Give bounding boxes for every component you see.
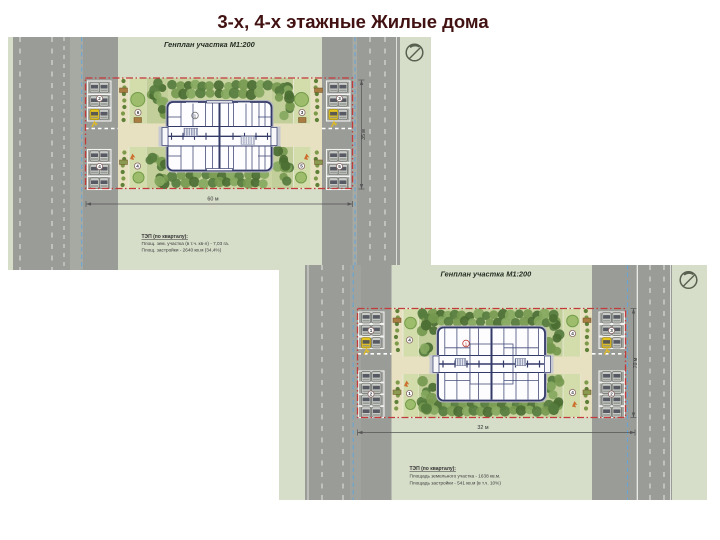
svg-text:32 м: 32 м (477, 425, 488, 431)
svg-text:Площадь застройки - 541 кв.м (: Площадь застройки - 541 кв.м (в т.ч. 10%… (410, 480, 502, 486)
svg-text:35 м: 35 м (361, 129, 367, 140)
svg-text:3: 3 (338, 96, 341, 101)
svg-text:1: 1 (194, 113, 197, 119)
svg-text:4: 4 (408, 338, 411, 343)
svg-text:4: 4 (571, 390, 574, 395)
svg-text:1: 1 (465, 341, 468, 347)
svg-text:5: 5 (300, 164, 303, 169)
svg-text:60 м: 60 м (207, 197, 218, 203)
svg-text:Генплан участка М1:200: Генплан участка М1:200 (164, 40, 256, 49)
svg-text:ТЭП (по кварталу):: ТЭП (по кварталу): (410, 466, 457, 472)
svg-text:ТЭП (по кварталу):: ТЭП (по кварталу): (142, 234, 189, 240)
svg-text:Площ. зем. участка (в т.ч. кв-: Площ. зем. участка (в т.ч. кв-л) - 7,03 … (142, 241, 230, 246)
svg-text:3: 3 (610, 328, 613, 333)
svg-text:2: 2 (370, 392, 373, 397)
svg-text:4: 4 (136, 164, 139, 169)
svg-text:6: 6 (137, 110, 140, 115)
svg-text:Площадь земельного участка - 1: Площадь земельного участка - 1638 кв.м. (410, 474, 501, 479)
svg-text:1: 1 (370, 328, 373, 333)
svg-text:Площ. застройки - 2640 кв.м (3: Площ. застройки - 2640 кв.м (34,4%) (142, 247, 222, 253)
svg-text:1: 1 (408, 391, 411, 396)
svg-text:4: 4 (98, 164, 101, 169)
svg-text:4: 4 (571, 331, 574, 336)
svg-text:3: 3 (301, 110, 304, 115)
svg-text:2: 2 (98, 96, 101, 101)
svg-text:70 м: 70 м (633, 357, 639, 368)
svg-text:Генплан участка М1:200: Генплан участка М1:200 (441, 270, 533, 279)
svg-text:2: 2 (610, 392, 613, 397)
svg-text:5: 5 (338, 164, 341, 169)
